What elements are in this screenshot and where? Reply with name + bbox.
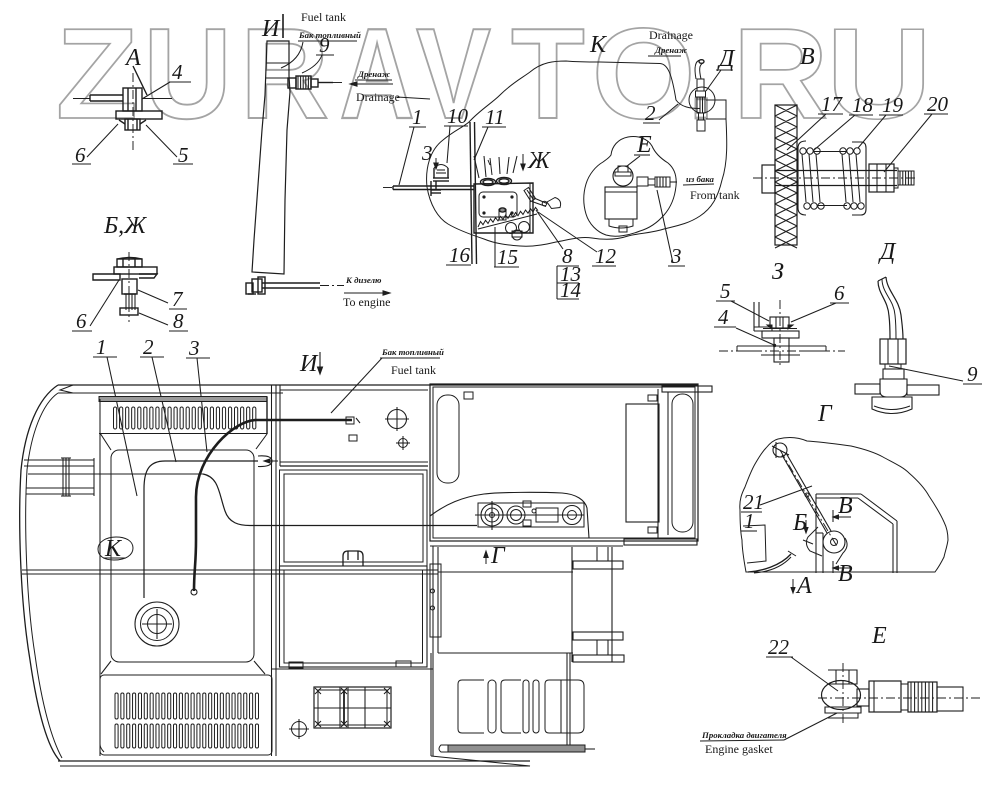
svg-text:В: В [838, 561, 853, 587]
svg-text:В: В [800, 44, 815, 70]
svg-text:из бака: из бака [686, 174, 715, 184]
svg-text:To engine: To engine [343, 295, 390, 309]
svg-text:Engine gasket: Engine gasket [705, 742, 773, 756]
svg-text:14: 14 [560, 278, 582, 302]
svg-text:9: 9 [967, 362, 978, 386]
svg-text:From tank: From tank [690, 188, 740, 202]
svg-text:18: 18 [852, 93, 874, 117]
svg-text:15: 15 [497, 245, 518, 269]
svg-text:2: 2 [645, 101, 656, 125]
svg-text:Fuel tank: Fuel tank [301, 10, 346, 24]
svg-text:O: O [592, 1, 696, 146]
svg-text:2: 2 [143, 335, 154, 359]
svg-text:11: 11 [485, 105, 504, 129]
svg-text:И: И [299, 351, 319, 377]
svg-text:16: 16 [449, 243, 471, 267]
svg-text:1: 1 [412, 105, 423, 129]
svg-text:И: И [261, 16, 281, 42]
svg-text:6: 6 [75, 143, 86, 167]
svg-text:Б: Б [792, 510, 807, 536]
svg-text:T: T [511, 2, 585, 146]
svg-text:1: 1 [96, 335, 107, 359]
svg-text:Drainage: Drainage [356, 90, 400, 104]
svg-text:10: 10 [447, 104, 469, 128]
svg-text:Е: Е [636, 132, 652, 158]
svg-text:19: 19 [882, 93, 904, 117]
svg-text:А: А [795, 573, 812, 599]
svg-text:6: 6 [76, 309, 87, 333]
svg-text:5: 5 [178, 143, 189, 167]
svg-text:Прокладка двигателя: Прокладка двигателя [701, 730, 787, 740]
svg-text:Г: Г [817, 401, 833, 427]
svg-text:22: 22 [768, 635, 790, 659]
svg-text:4: 4 [718, 305, 729, 329]
svg-text:Е: Е [871, 623, 887, 649]
svg-text:3: 3 [421, 141, 433, 165]
svg-text:7: 7 [172, 287, 184, 311]
svg-text:8: 8 [173, 309, 184, 333]
svg-text:1: 1 [744, 509, 755, 533]
svg-text:Ж: Ж [527, 148, 551, 174]
svg-text:Дренаж: Дренаж [357, 69, 391, 79]
svg-text:.: . [690, 1, 713, 146]
svg-text:5: 5 [720, 279, 731, 303]
svg-text:К: К [589, 32, 608, 58]
svg-text:Дренаж: Дренаж [654, 45, 688, 55]
svg-text:9: 9 [319, 33, 330, 57]
svg-text:17: 17 [821, 92, 844, 116]
svg-text:Drainage: Drainage [649, 28, 693, 42]
svg-text:20: 20 [927, 92, 949, 116]
svg-text:6: 6 [834, 281, 845, 305]
svg-text:4: 4 [172, 60, 183, 84]
svg-text:Бак топливный: Бак топливный [381, 347, 444, 357]
svg-text:Fuel tank: Fuel tank [391, 363, 436, 377]
svg-text:В: В [838, 493, 853, 519]
svg-text:3: 3 [188, 336, 200, 360]
svg-text:Д: Д [878, 239, 897, 265]
svg-text:З: З [772, 259, 784, 285]
svg-text:Д: Д [717, 46, 736, 72]
svg-text:U: U [826, 2, 932, 146]
svg-text:12: 12 [595, 244, 617, 268]
svg-text:U: U [143, 1, 231, 146]
svg-text:А: А [124, 45, 141, 71]
svg-text:Г: Г [490, 543, 506, 569]
svg-text:Б,Ж: Б,Ж [103, 213, 147, 239]
svg-text:К дизелю: К дизелю [345, 275, 382, 285]
